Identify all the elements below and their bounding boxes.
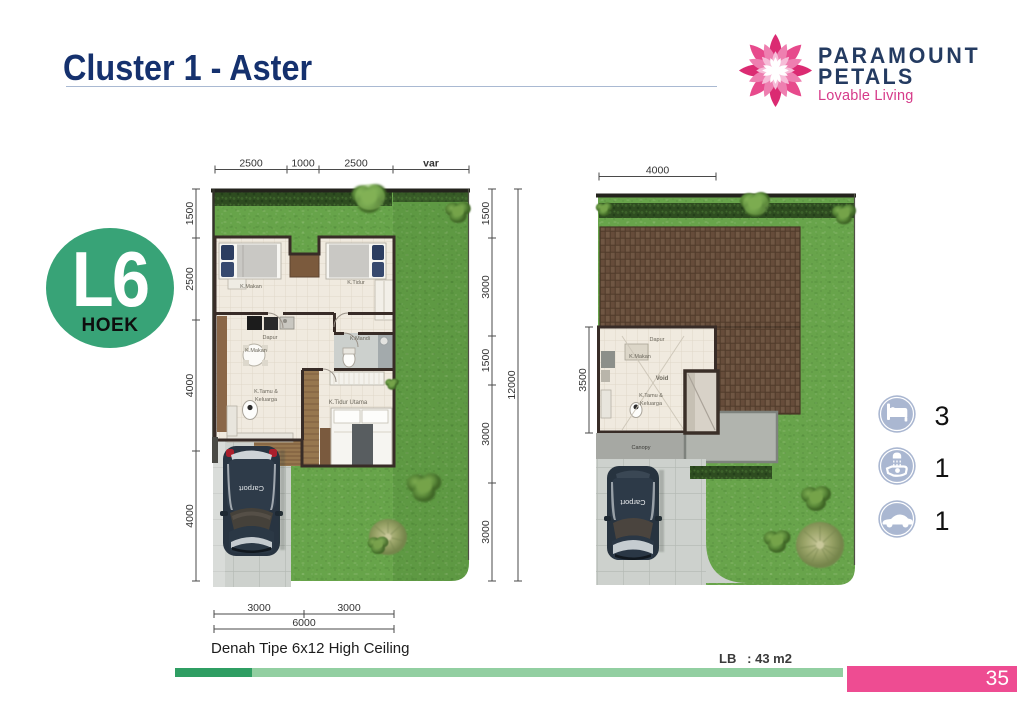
svg-text:Dapur: Dapur — [263, 335, 278, 341]
svg-text:3000: 3000 — [480, 422, 492, 446]
svg-text:K.Makan: K.Makan — [629, 354, 651, 360]
svg-text:K.Tidur Utama: K.Tidur Utama — [329, 400, 368, 406]
svg-text:Carport: Carport — [238, 484, 264, 493]
svg-text:1500: 1500 — [480, 202, 492, 226]
svg-text:1500: 1500 — [184, 202, 196, 226]
svg-text:K.Tamu &: K.Tamu & — [639, 393, 663, 399]
svg-text:K.Tamu &: K.Tamu & — [254, 389, 278, 395]
svg-text:2500: 2500 — [184, 267, 196, 291]
svg-text:1000: 1000 — [291, 158, 315, 170]
svg-text:4000: 4000 — [184, 374, 196, 398]
svg-text:6000: 6000 — [292, 617, 316, 629]
svg-text:K.Mandi: K.Mandi — [350, 336, 370, 342]
svg-text:4000: 4000 — [646, 165, 670, 177]
svg-text:2500: 2500 — [344, 158, 368, 170]
svg-text:3000: 3000 — [480, 520, 492, 544]
svg-text:var: var — [423, 158, 439, 170]
svg-text:Keluarga: Keluarga — [640, 401, 663, 407]
svg-text:1500: 1500 — [480, 349, 492, 373]
svg-text:12000: 12000 — [506, 370, 518, 399]
svg-text:Keluarga: Keluarga — [255, 397, 278, 403]
svg-text:Void: Void — [656, 376, 669, 382]
svg-text:Dapur: Dapur — [650, 337, 665, 343]
svg-text:Canopy: Canopy — [632, 445, 651, 451]
svg-text:3000: 3000 — [480, 275, 492, 299]
svg-text:2500: 2500 — [239, 158, 263, 170]
svg-text:3500: 3500 — [578, 368, 589, 392]
svg-text:K.Tidur: K.Tidur — [347, 280, 365, 286]
svg-text:K.Makan: K.Makan — [240, 284, 262, 290]
svg-text:3000: 3000 — [337, 602, 361, 614]
svg-text:4000: 4000 — [184, 504, 196, 528]
svg-text:3000: 3000 — [247, 602, 271, 614]
svg-text:K.Makan: K.Makan — [245, 348, 267, 354]
svg-text:Carport: Carport — [620, 498, 646, 507]
